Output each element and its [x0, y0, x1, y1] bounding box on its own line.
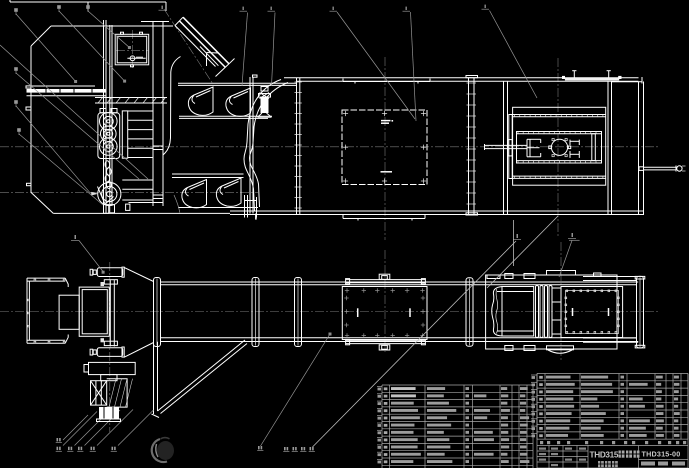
svg-text:THD315: THD315	[590, 451, 619, 460]
svg-text:THD315-00: THD315-00	[642, 450, 681, 459]
